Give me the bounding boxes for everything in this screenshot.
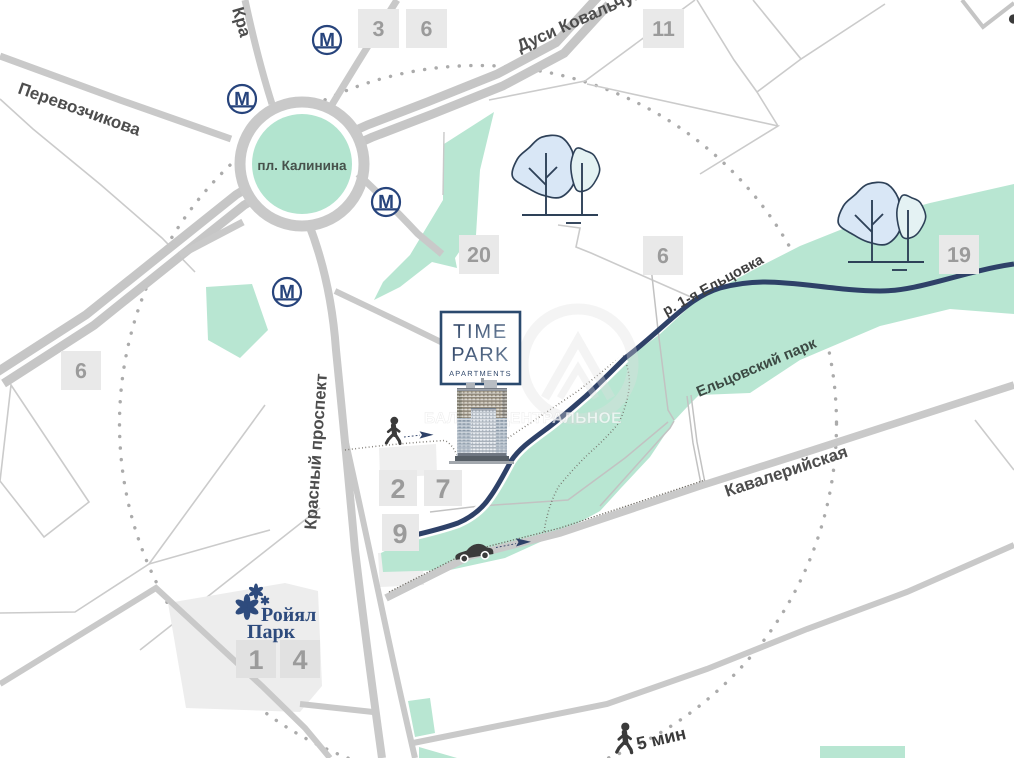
svg-text:пл. Калинина: пл. Калинина	[257, 158, 347, 173]
svg-text:Парк: Парк	[247, 621, 296, 643]
svg-text:9: 9	[392, 519, 407, 549]
svg-text:2: 2	[390, 474, 405, 504]
svg-text:3: 3	[373, 17, 385, 41]
svg-text:PARK: PARK	[451, 344, 510, 366]
svg-text:19: 19	[947, 243, 971, 267]
svg-text:6: 6	[421, 17, 433, 41]
svg-text:6: 6	[75, 359, 87, 383]
svg-text:11: 11	[652, 17, 675, 41]
svg-text:БАЛАНС ЦЕНТРАЛЬНОЕ: БАЛАНС ЦЕНТРАЛЬНОЕ	[424, 410, 622, 427]
svg-text:4: 4	[292, 645, 307, 675]
svg-text:М: М	[319, 30, 335, 51]
svg-text:APARTMENTS: APARTMENTS	[449, 369, 512, 378]
svg-text:7: 7	[435, 474, 450, 504]
svg-text:6: 6	[657, 244, 669, 268]
svg-text:20: 20	[467, 243, 491, 267]
svg-text:TIME: TIME	[453, 321, 508, 343]
svg-text:1: 1	[248, 645, 263, 675]
